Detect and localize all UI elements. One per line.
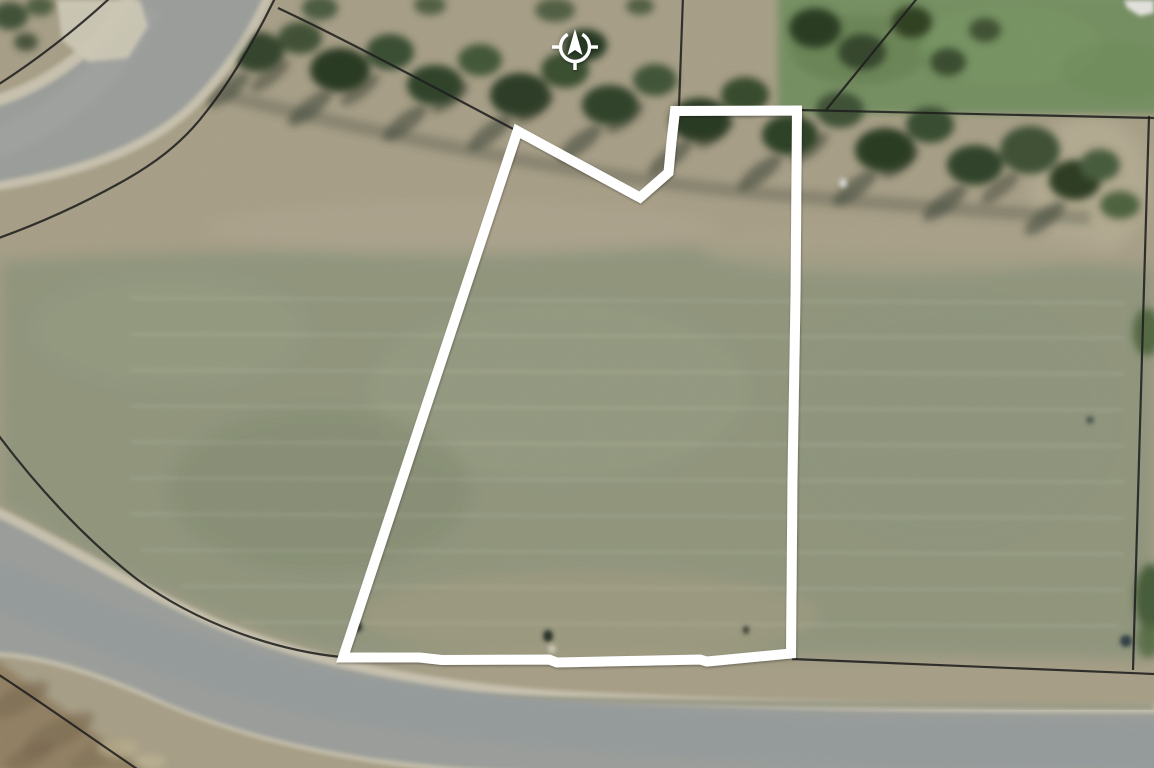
aerial-map-canvas[interactable] xyxy=(0,0,1154,768)
aerial-map-viewport[interactable] xyxy=(0,0,1154,768)
